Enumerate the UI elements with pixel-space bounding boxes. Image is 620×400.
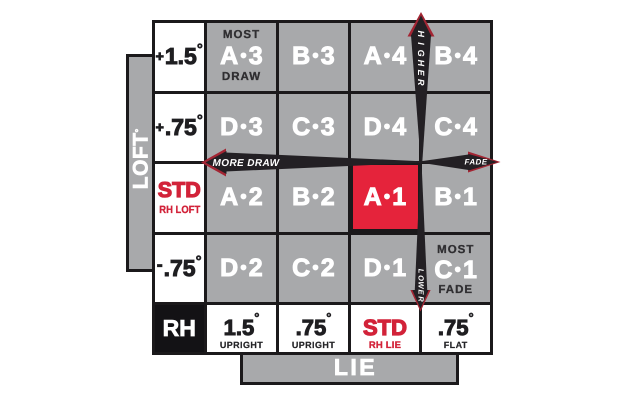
svg-text:H: H xyxy=(416,31,426,38)
svg-text:L: L xyxy=(417,269,426,274)
svg-text:G: G xyxy=(416,50,426,57)
svg-text:E: E xyxy=(416,70,426,77)
svg-text:R: R xyxy=(416,79,426,86)
svg-text:MORE DRAW: MORE DRAW xyxy=(213,158,281,169)
svg-text:R: R xyxy=(417,296,426,302)
svg-text:W: W xyxy=(417,281,426,289)
svg-text:O: O xyxy=(417,275,426,281)
svg-text:FADE: FADE xyxy=(465,157,488,166)
svg-text:H: H xyxy=(416,60,426,67)
